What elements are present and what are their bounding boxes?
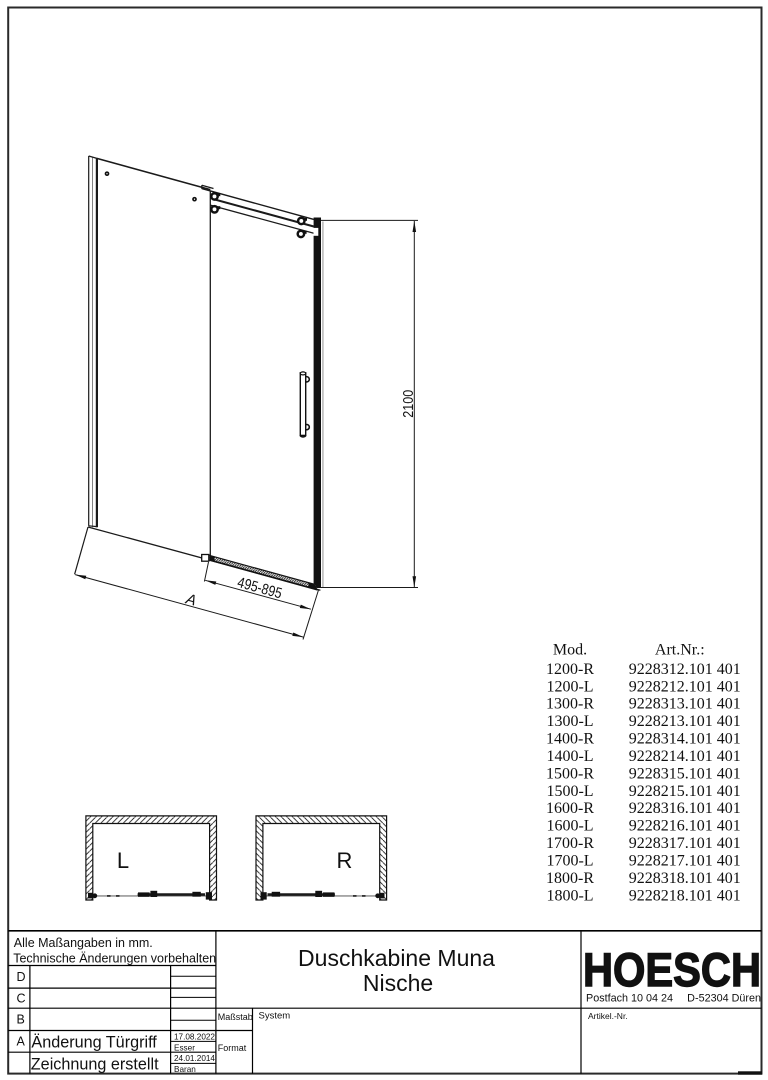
svg-text:Zeichnung erstellt: Zeichnung erstellt bbox=[31, 1056, 159, 1074]
svg-text:1200-L: 1200-L bbox=[546, 678, 593, 695]
svg-text:D-52304 Düren: D-52304 Düren bbox=[687, 992, 761, 1004]
svg-text:HOESCH: HOESCH bbox=[583, 943, 761, 996]
svg-text:2100: 2100 bbox=[400, 390, 417, 418]
svg-text:Artikel.-Nr.: Artikel.-Nr. bbox=[588, 1011, 628, 1021]
svg-text:9228315.101 401: 9228315.101 401 bbox=[629, 765, 741, 782]
svg-text:9228312.101 401: 9228312.101 401 bbox=[629, 661, 741, 678]
svg-text:A: A bbox=[17, 1035, 26, 1049]
svg-text:B: B bbox=[17, 1013, 25, 1027]
svg-text:Esser: Esser bbox=[174, 1043, 195, 1052]
svg-text:9228318.101 401: 9228318.101 401 bbox=[629, 870, 741, 887]
svg-text:9228212.101 401: 9228212.101 401 bbox=[629, 678, 741, 695]
svg-text:Nische: Nische bbox=[363, 970, 433, 996]
svg-text:Maßstab: Maßstab bbox=[218, 1012, 253, 1022]
svg-text:1400-R: 1400-R bbox=[546, 731, 594, 748]
svg-text:9228215.101 401: 9228215.101 401 bbox=[629, 783, 741, 800]
svg-text:9228317.101 401: 9228317.101 401 bbox=[629, 835, 741, 852]
svg-text:Baran: Baran bbox=[174, 1065, 196, 1074]
svg-text:1700-R: 1700-R bbox=[546, 835, 594, 852]
svg-text:Postfach 10 04 24: Postfach 10 04 24 bbox=[586, 992, 673, 1004]
svg-text:1500-L: 1500-L bbox=[546, 783, 593, 800]
svg-text:1300-L: 1300-L bbox=[546, 713, 593, 730]
svg-text:1600-R: 1600-R bbox=[546, 800, 594, 817]
svg-text:9228213.101 401: 9228213.101 401 bbox=[629, 713, 741, 730]
svg-text:9228313.101 401: 9228313.101 401 bbox=[629, 696, 741, 713]
svg-text:R: R bbox=[337, 848, 353, 873]
svg-text:1600-L: 1600-L bbox=[546, 818, 593, 835]
svg-text:1800-R: 1800-R bbox=[546, 870, 594, 887]
svg-text:C: C bbox=[17, 991, 26, 1005]
svg-text:9228314.101 401: 9228314.101 401 bbox=[629, 731, 741, 748]
svg-text:Duschkabine Muna: Duschkabine Muna bbox=[298, 945, 495, 971]
svg-text:9228316.101 401: 9228316.101 401 bbox=[629, 800, 741, 817]
svg-text:Technische Änderungen vorbehal: Technische Änderungen vorbehalten bbox=[13, 952, 216, 966]
svg-text:9228217.101 401: 9228217.101 401 bbox=[629, 853, 741, 870]
svg-text:L: L bbox=[117, 848, 129, 873]
svg-text:24.01.2014: 24.01.2014 bbox=[174, 1054, 215, 1063]
svg-text:Format: Format bbox=[218, 1043, 247, 1053]
svg-text:Art.Nr.:: Art.Nr.: bbox=[655, 641, 705, 658]
svg-text:9228214.101 401: 9228214.101 401 bbox=[629, 748, 741, 765]
svg-text:1300-R: 1300-R bbox=[546, 696, 594, 713]
svg-text:Änderung Türgriff: Änderung Türgriff bbox=[31, 1034, 157, 1052]
svg-text:1200-R: 1200-R bbox=[546, 661, 594, 678]
svg-text:D: D bbox=[17, 970, 26, 984]
svg-text:1800-L: 1800-L bbox=[546, 887, 593, 904]
svg-text:9228218.101 401: 9228218.101 401 bbox=[629, 887, 741, 904]
svg-text:1500-R: 1500-R bbox=[546, 765, 594, 782]
svg-text:9228216.101 401: 9228216.101 401 bbox=[629, 818, 741, 835]
svg-text:Mod.: Mod. bbox=[553, 641, 587, 658]
svg-text:Alle Maßangaben in mm.: Alle Maßangaben in mm. bbox=[14, 936, 153, 950]
svg-text:17.08.2022: 17.08.2022 bbox=[174, 1032, 215, 1041]
svg-text:System: System bbox=[259, 1011, 291, 1022]
svg-text:1700-L: 1700-L bbox=[546, 853, 593, 870]
svg-text:1400-L: 1400-L bbox=[546, 748, 593, 765]
